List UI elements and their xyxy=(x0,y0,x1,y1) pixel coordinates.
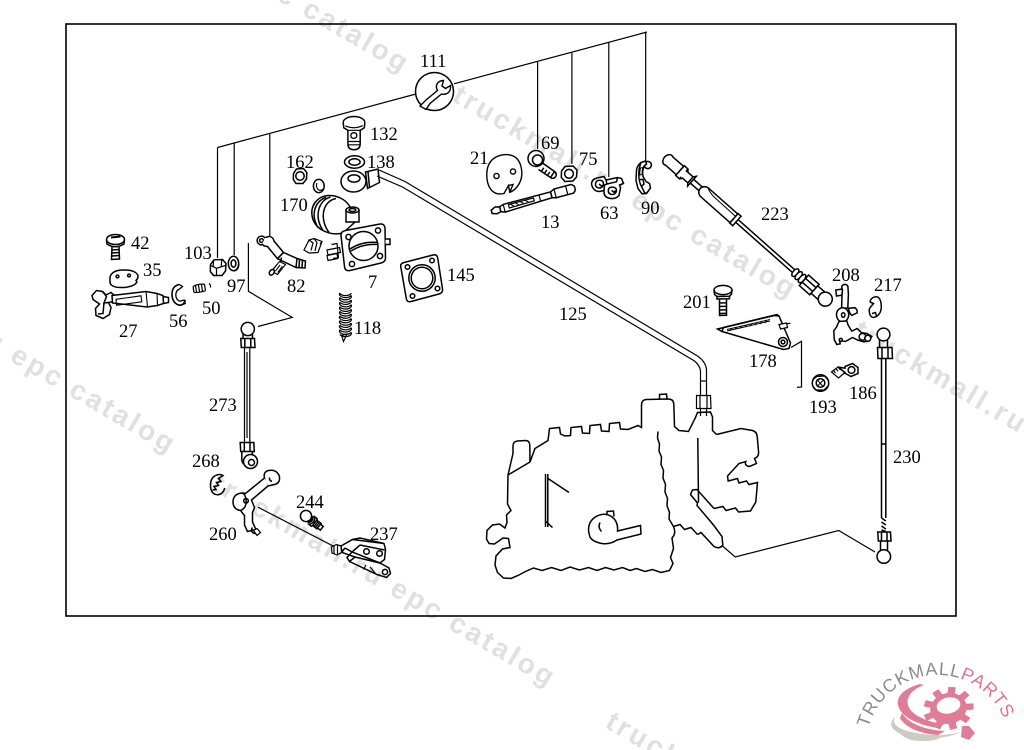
svg-text:82: 82 xyxy=(287,277,306,297)
svg-text:21: 21 xyxy=(470,149,489,169)
svg-text:42: 42 xyxy=(131,234,150,254)
svg-text:125: 125 xyxy=(559,305,587,325)
svg-text:268: 268 xyxy=(192,452,220,472)
svg-text:truckmall.ru epc catalog: truckmall.ru epc catalog xyxy=(61,0,417,79)
svg-text:103: 103 xyxy=(184,244,212,264)
svg-text:178: 178 xyxy=(749,352,777,372)
svg-text:223: 223 xyxy=(761,205,789,225)
svg-text:193: 193 xyxy=(809,398,837,418)
svg-text:7: 7 xyxy=(368,273,377,293)
svg-text:truckmall.ru epc catalog: truckmall.ru epc catalog xyxy=(207,467,563,693)
svg-text:63: 63 xyxy=(600,204,619,224)
svg-text:132: 132 xyxy=(370,125,398,145)
svg-text:273: 273 xyxy=(209,396,237,416)
svg-text:13: 13 xyxy=(541,213,560,233)
svg-text:162: 162 xyxy=(286,153,314,173)
svg-text:90: 90 xyxy=(641,199,660,219)
svg-text:186: 186 xyxy=(849,384,877,404)
svg-text:97: 97 xyxy=(227,277,246,297)
svg-text:56: 56 xyxy=(169,312,188,332)
svg-text:237: 237 xyxy=(370,525,398,545)
svg-text:75: 75 xyxy=(579,150,598,170)
svg-text:50: 50 xyxy=(202,299,221,319)
svg-text:244: 244 xyxy=(296,493,324,513)
svg-text:69: 69 xyxy=(541,134,560,154)
svg-text:27: 27 xyxy=(119,322,138,342)
svg-text:217: 217 xyxy=(874,276,902,296)
svg-text:170: 170 xyxy=(280,196,308,216)
svg-text:truckmall.ru epc catalog: truckmall.ru epc catalog xyxy=(849,314,1024,540)
svg-text:201: 201 xyxy=(683,293,711,313)
svg-text:111: 111 xyxy=(420,52,446,72)
svg-text:260: 260 xyxy=(209,525,237,545)
svg-text:208: 208 xyxy=(832,266,860,286)
svg-text:35: 35 xyxy=(143,261,162,281)
svg-text:118: 118 xyxy=(354,319,381,339)
svg-text:230: 230 xyxy=(893,448,921,468)
svg-text:138: 138 xyxy=(367,153,395,173)
svg-text:145: 145 xyxy=(447,266,475,286)
